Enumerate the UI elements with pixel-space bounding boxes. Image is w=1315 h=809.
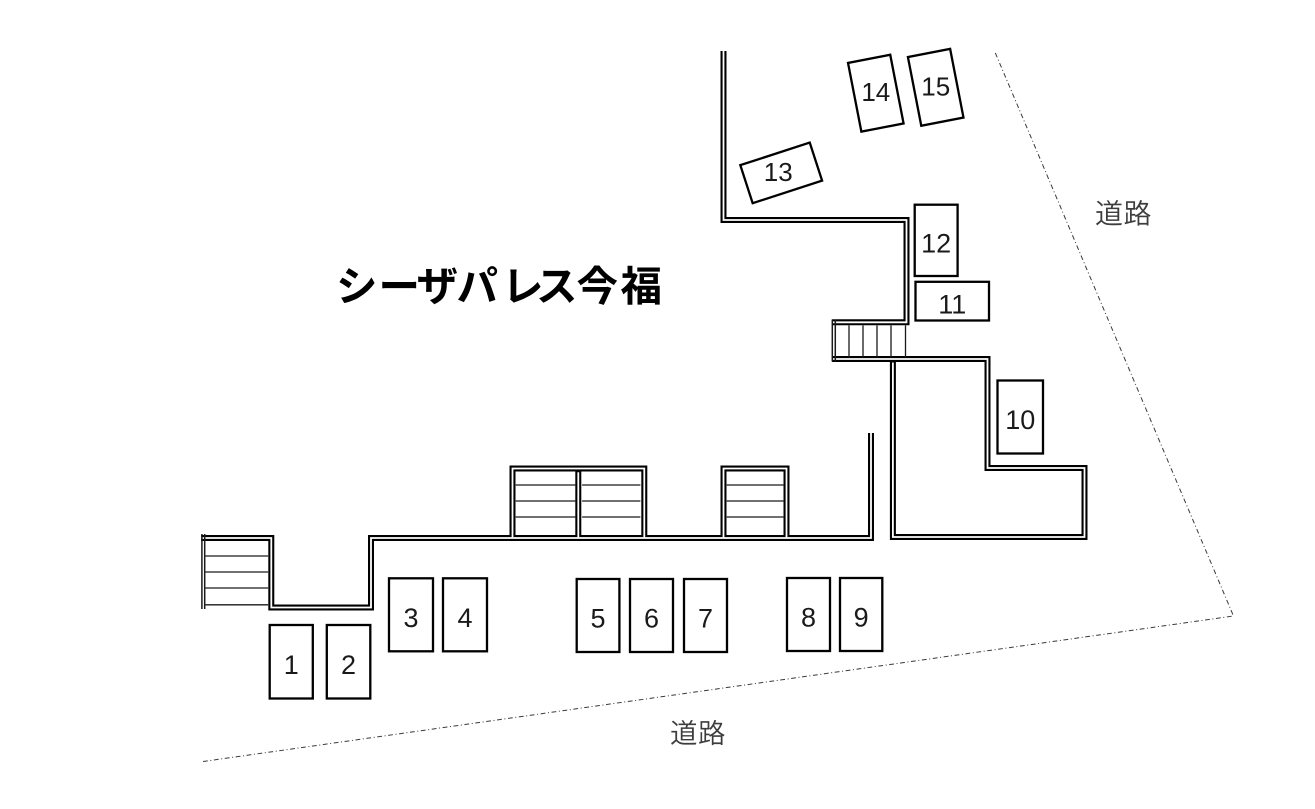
svg-text:14: 14 bbox=[861, 77, 890, 107]
svg-text:7: 7 bbox=[698, 604, 713, 634]
svg-text:8: 8 bbox=[801, 603, 816, 633]
svg-text:12: 12 bbox=[921, 229, 951, 259]
svg-text:10: 10 bbox=[1005, 405, 1035, 435]
svg-text:2: 2 bbox=[341, 650, 356, 680]
svg-text:6: 6 bbox=[644, 604, 659, 634]
svg-text:3: 3 bbox=[403, 603, 418, 633]
svg-text:5: 5 bbox=[591, 604, 606, 634]
svg-text:13: 13 bbox=[764, 157, 793, 187]
svg-text:11: 11 bbox=[938, 289, 966, 319]
svg-text:9: 9 bbox=[854, 603, 869, 633]
svg-text:15: 15 bbox=[921, 71, 950, 101]
svg-text:4: 4 bbox=[457, 603, 472, 633]
svg-text:1: 1 bbox=[284, 650, 299, 680]
